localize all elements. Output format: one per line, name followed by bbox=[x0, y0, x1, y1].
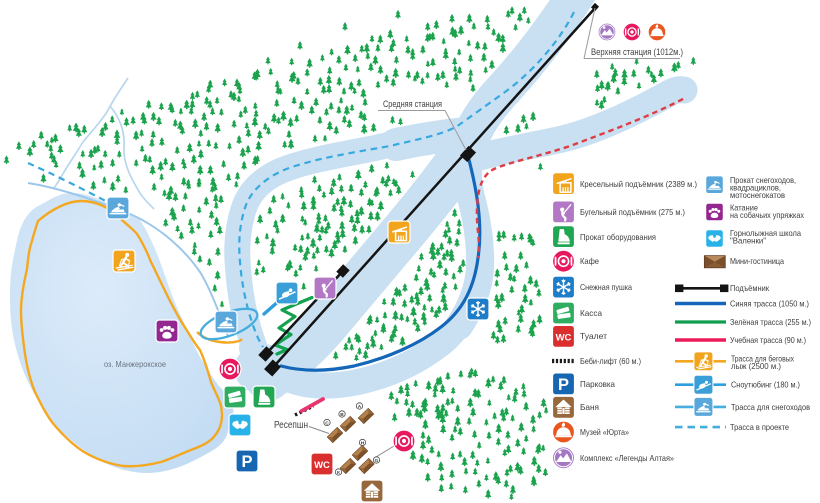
svg-text:Снежная пушка: Снежная пушка bbox=[580, 282, 632, 292]
svg-text:Кресельный подъёмник (2389 м.): Кресельный подъёмник (2389 м.) bbox=[580, 179, 697, 189]
svg-text:Кафе: Кафе bbox=[580, 256, 599, 266]
svg-text:"Валенки": "Валенки" bbox=[730, 236, 766, 246]
svg-text:В: В bbox=[340, 412, 344, 418]
svg-text:Подъёмник: Подъёмник bbox=[730, 283, 769, 293]
svg-text:мотоснегокатов: мотоснегокатов bbox=[730, 190, 785, 200]
svg-text:Верхняя станция (1012м.): Верхняя станция (1012м.) bbox=[591, 47, 683, 57]
svg-text:А: А bbox=[358, 404, 362, 410]
svg-text:Трасса для снегоходов: Трасса для снегоходов bbox=[731, 402, 810, 412]
svg-text:G: G bbox=[375, 458, 379, 464]
svg-text:Комплекс «Легенды Алтая»: Комплекс «Легенды Алтая» bbox=[580, 453, 674, 463]
svg-text:Туалет: Туалет bbox=[580, 331, 607, 341]
svg-text:Музей «Юрта»: Музей «Юрта» bbox=[580, 427, 629, 437]
svg-text:Касса: Касса bbox=[580, 308, 602, 318]
svg-text:Бугельный подъёмник (275 м.): Бугельный подъёмник (275 м.) bbox=[580, 207, 685, 217]
svg-text:лыж (2500 м.): лыж (2500 м.) bbox=[731, 361, 781, 371]
svg-text:С: С bbox=[325, 420, 329, 426]
svg-text:Беби-лифт (60 м.): Беби-лифт (60 м.) bbox=[580, 356, 641, 366]
svg-text:Трасса в проекте: Трасса в проекте bbox=[730, 422, 789, 432]
svg-text:оз. Манжерокское: оз. Манжерокское bbox=[104, 360, 166, 369]
svg-text:К: К bbox=[337, 470, 340, 476]
svg-text:Прокат оборудования: Прокат оборудования bbox=[580, 232, 656, 242]
svg-text:Сноутюбинг (180 м.): Сноутюбинг (180 м.) bbox=[731, 380, 800, 390]
svg-text:Баня: Баня bbox=[580, 402, 599, 412]
svg-text:Зелёная трасса (255 м.): Зелёная трасса (255 м.) bbox=[730, 317, 811, 327]
svg-text:Парковка: Парковка bbox=[580, 379, 615, 389]
svg-text:Синяя трасса (1050 м.): Синяя трасса (1050 м.) bbox=[730, 299, 809, 309]
svg-text:Учебная трасса (90 м.): Учебная трасса (90 м.) bbox=[730, 335, 806, 345]
svg-text:Мини-гостиница: Мини-гостиница bbox=[730, 256, 784, 266]
svg-text:Н: Н bbox=[361, 440, 365, 446]
svg-text:Ресепшн: Ресепшн bbox=[274, 420, 308, 431]
svg-text:Средняя станция: Средняя станция bbox=[383, 99, 442, 109]
svg-text:на собачьих упряжках: на собачьих упряжках bbox=[730, 210, 805, 220]
